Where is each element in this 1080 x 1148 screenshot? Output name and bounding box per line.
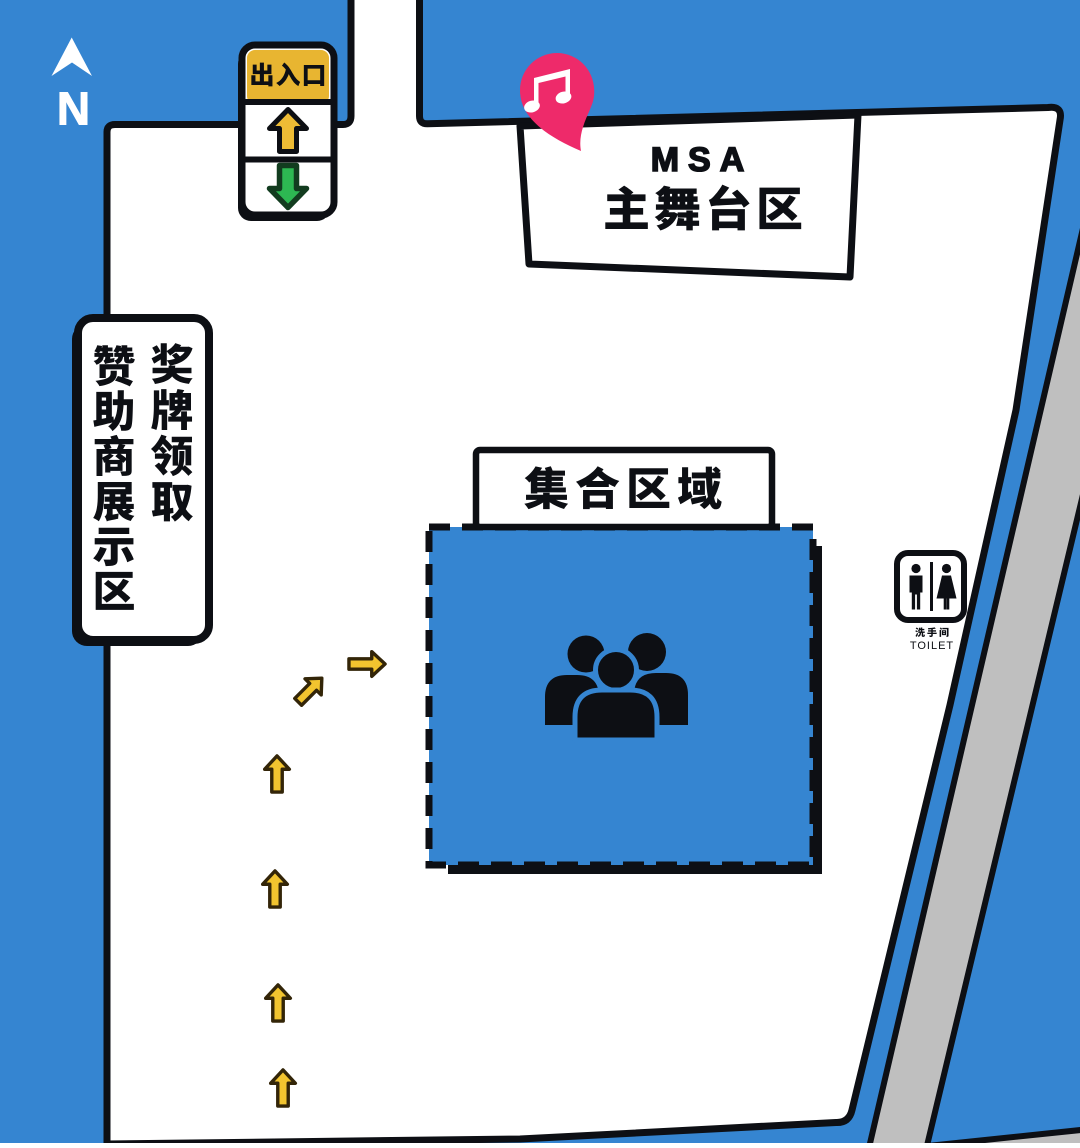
svg-text:MSA: MSA bbox=[651, 141, 754, 179]
svg-text:TOILET: TOILET bbox=[910, 640, 954, 652]
svg-text:N: N bbox=[57, 83, 90, 135]
